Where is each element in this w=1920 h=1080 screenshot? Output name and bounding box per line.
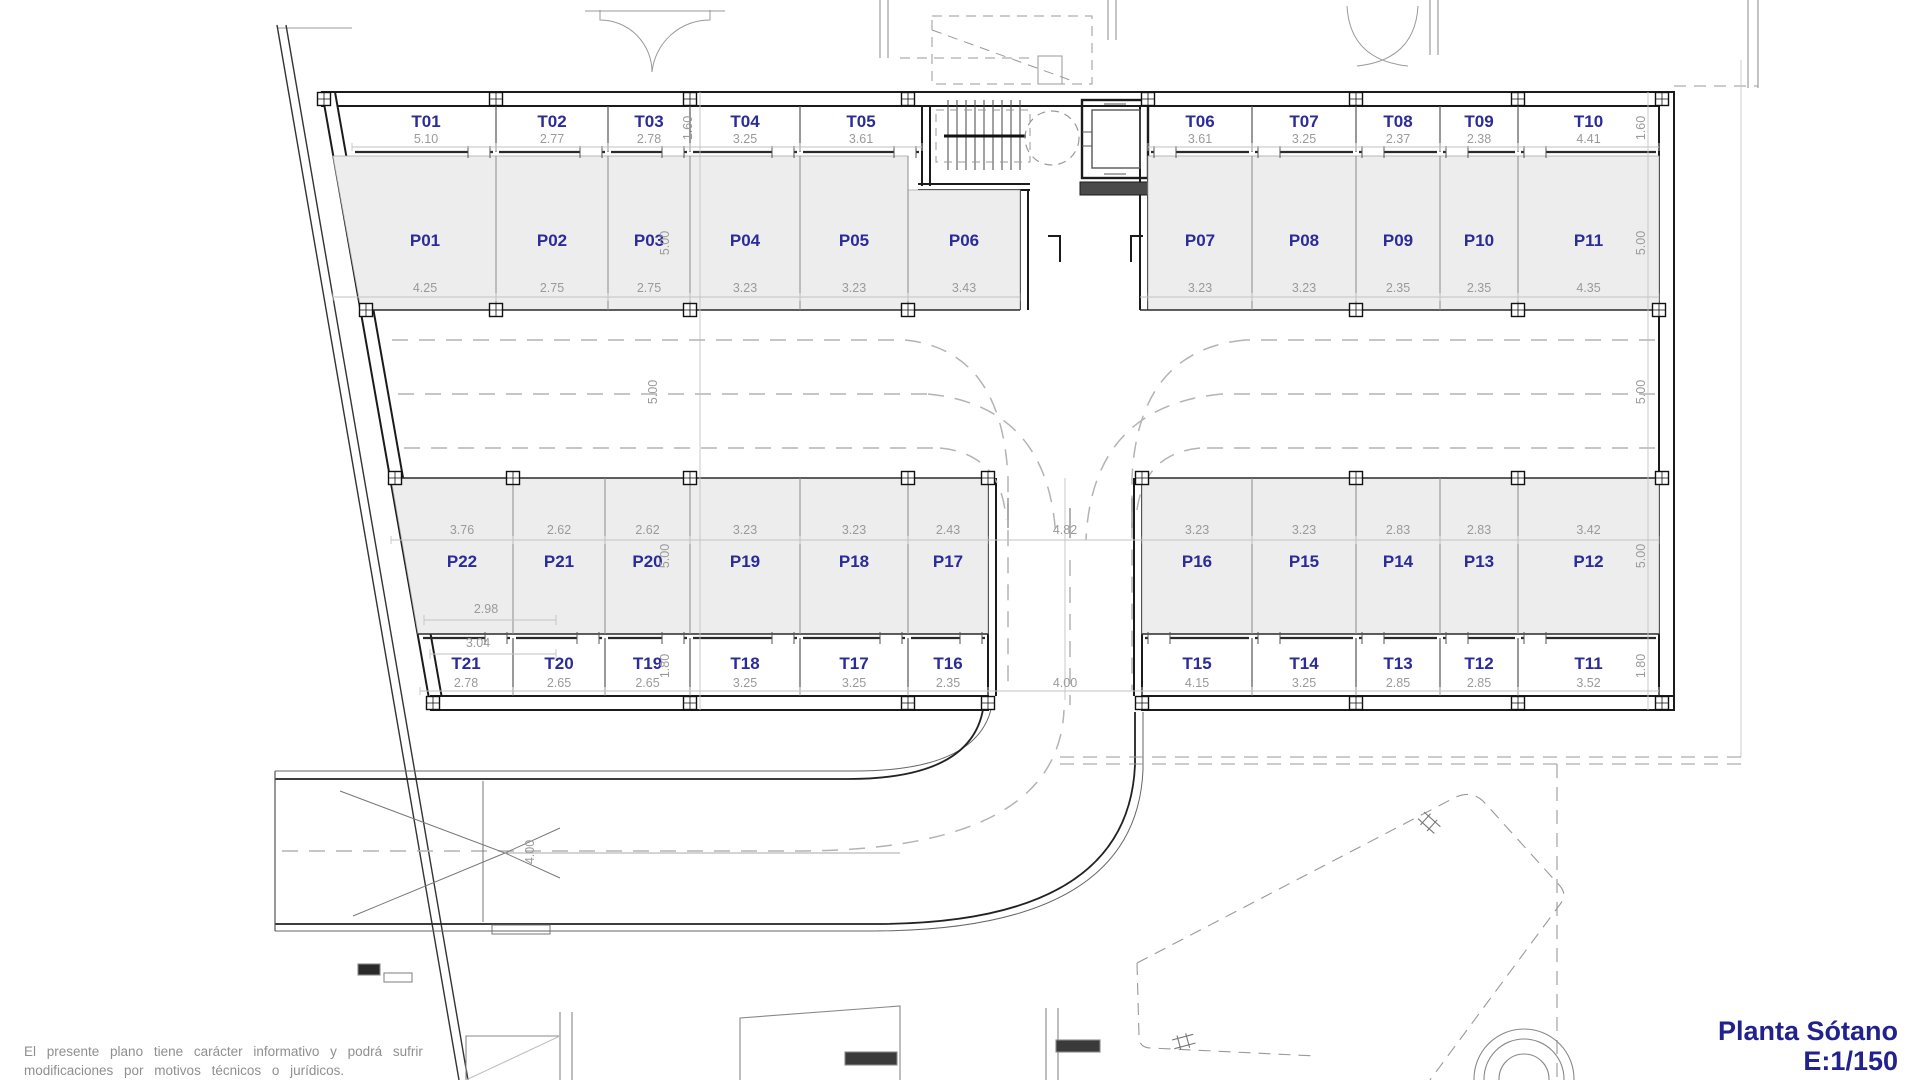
turning-circle — [1025, 111, 1079, 165]
parking-space-dim: 2.75 — [540, 281, 564, 295]
elevator-sill — [1080, 182, 1148, 195]
parking-space-label: P15 — [1289, 552, 1319, 571]
storage-room-dim: 2.37 — [1386, 132, 1410, 146]
plan-title: Planta Sótano — [1718, 1016, 1898, 1046]
floor-plan-canvas: T015.10T022.77T032.78T043.25T053.61T063.… — [0, 0, 1920, 1080]
parking-space-dim: 3.23 — [733, 523, 757, 537]
storage-room-dim: 2.78 — [637, 132, 661, 146]
storage-room-label: T13 — [1383, 654, 1412, 673]
title-block: Planta Sótano E:1/150 — [1718, 1016, 1898, 1076]
storage-room-dim: 3.61 — [849, 132, 873, 146]
column-marker — [684, 304, 697, 317]
elevator-door — [1082, 104, 1126, 174]
door-arcs-icon — [1347, 6, 1418, 66]
storage-room-label: T04 — [730, 112, 760, 131]
storage-room-dim: 3.25 — [1292, 132, 1316, 146]
depth-dim: 5.00 — [658, 231, 672, 255]
column-marker — [902, 93, 915, 106]
column-marker — [490, 304, 503, 317]
parking-space-label: P14 — [1383, 552, 1414, 571]
parking-space-label: P19 — [730, 552, 760, 571]
storage-room-dim: 2.65 — [635, 676, 659, 690]
wall-bottom-right — [1142, 696, 1674, 710]
column-marker — [1142, 93, 1155, 106]
column-marker — [1350, 93, 1363, 106]
storage-room-label: T16 — [933, 654, 962, 673]
storage-room-dim: 2.38 — [1467, 132, 1491, 146]
parking-space-dim: 2.83 — [1467, 523, 1491, 537]
column-marker — [360, 304, 373, 317]
depth-dim: 1.80 — [658, 654, 672, 678]
parking-space-label: P22 — [447, 552, 477, 571]
parking-space-dim: 3.23 — [842, 281, 866, 295]
context-structures-bottom-left — [358, 964, 1100, 1080]
storage-room-dim: 3.25 — [842, 676, 866, 690]
column-marker — [427, 697, 440, 710]
pool-outline — [1137, 794, 1564, 1080]
storage-room-dim: 2.85 — [1467, 676, 1491, 690]
storage-room-dim: 3.52 — [1576, 676, 1600, 690]
column-marker — [1512, 472, 1525, 485]
parking-space-dim: 3.23 — [1292, 281, 1316, 295]
bottom-gap-dim: 4.00 — [1053, 676, 1077, 690]
upper-floor-outline — [900, 16, 1092, 84]
parking-space-label: P16 — [1182, 552, 1212, 571]
column-marker — [1656, 697, 1669, 710]
depth-dim: 1.80 — [1634, 654, 1648, 678]
column-marker — [1512, 304, 1525, 317]
parking-space-label: P12 — [1573, 552, 1603, 571]
parking-space-label: P18 — [839, 552, 869, 571]
upper-floor-pier — [1038, 56, 1062, 84]
column-marker — [1656, 472, 1669, 485]
column-marker — [684, 697, 697, 710]
storage-room-dim: 2.77 — [540, 132, 564, 146]
parking-space-dim: 2.35 — [1386, 281, 1410, 295]
storage-room-dim: 2.65 — [547, 676, 571, 690]
depth-dim: 5.00 — [1634, 380, 1648, 404]
road-side-stub — [492, 925, 550, 934]
column-marker — [902, 472, 915, 485]
plan-disclaimer: El presente plano tiene carácter informa… — [24, 1042, 423, 1080]
storage-room-label: T21 — [451, 654, 480, 673]
storage-room-label: T03 — [634, 112, 663, 131]
storage-room-dim: 5.10 — [414, 132, 438, 146]
column-marker — [684, 93, 697, 106]
wall-right — [1659, 92, 1674, 710]
column-marker — [982, 472, 995, 485]
column-marker — [318, 93, 331, 106]
depth-dim: 5.00 — [1634, 231, 1648, 255]
column-marker — [1350, 472, 1363, 485]
parking-space-dim: 2.75 — [637, 281, 661, 295]
parking-space-dim: 2.43 — [936, 523, 960, 537]
column-marker — [1656, 93, 1669, 106]
storage-room-label: T09 — [1464, 112, 1493, 131]
column-marker — [389, 472, 402, 485]
parking-space-dim: 3.23 — [1188, 281, 1212, 295]
storage-room-label: T12 — [1464, 654, 1493, 673]
parking-space-dim: 3.23 — [733, 281, 757, 295]
parking-space-dim: 4.25 — [413, 281, 437, 295]
left-extra-dim: 3.04 — [466, 636, 490, 650]
context-above-building — [277, 0, 1758, 757]
left-extra-dim: 2.98 — [474, 602, 498, 616]
ramp-opening-dim: 4.82 — [1053, 523, 1077, 537]
column-marker — [982, 697, 995, 710]
storage-room-label: T06 — [1185, 112, 1214, 131]
parking-space-label: P02 — [537, 231, 567, 250]
parking-space-label: P09 — [1383, 231, 1413, 250]
storage-room-label: T17 — [839, 654, 868, 673]
storage-room-label: T02 — [537, 112, 566, 131]
storage-room-label: T15 — [1182, 654, 1211, 673]
road-edge-top — [275, 702, 984, 779]
column-marker — [1136, 472, 1149, 485]
wall-stubs-above — [880, 0, 1758, 88]
parking-space-dim: 3.43 — [952, 281, 976, 295]
storage-room-label: T05 — [846, 112, 875, 131]
parking-space-dim: 2.62 — [547, 523, 571, 537]
storage-room-dim: 2.85 — [1386, 676, 1410, 690]
depth-dim: 1.60 — [681, 116, 695, 140]
parking-space-dim: 2.83 — [1386, 523, 1410, 537]
column-marker — [1653, 304, 1666, 317]
storage-room-dim: 3.25 — [733, 676, 757, 690]
parking-space-dim: 3.23 — [1185, 523, 1209, 537]
disclaimer-line1: El presente plano tiene carácter informa… — [24, 1042, 423, 1061]
road-edge-bottom — [275, 712, 1135, 924]
parking-space-dim: 2.62 — [635, 523, 659, 537]
column-marker — [1350, 304, 1363, 317]
storage-room-dim: 3.25 — [733, 132, 757, 146]
disclaimer-line2: modificaciones por motivos técnicos o ju… — [24, 1061, 423, 1080]
parking-space-dim: 2.35 — [1467, 281, 1491, 295]
storage-room-label: T01 — [411, 112, 440, 131]
storage-room-label: T08 — [1383, 112, 1412, 131]
column-marker — [490, 93, 503, 106]
parking-space-label: P01 — [410, 231, 440, 250]
parking-space-label: P08 — [1289, 231, 1319, 250]
parking-space-dim: 3.42 — [1576, 523, 1600, 537]
plan-scale: E:1/150 — [1718, 1046, 1898, 1076]
depth-dim: 5.00 — [658, 544, 672, 568]
column-marker — [507, 472, 520, 485]
storage-room-dim: 4.41 — [1576, 132, 1600, 146]
parking-space-label: P17 — [933, 552, 963, 571]
parking-space-dim: 4.35 — [1576, 281, 1600, 295]
storage-room-dim: 4.15 — [1185, 676, 1209, 690]
elevator — [1080, 100, 1148, 195]
double-door-icon — [585, 10, 725, 72]
column-marker — [1136, 697, 1149, 710]
context-dashed-plot-lines — [1060, 757, 1745, 1080]
storage-room-label: T07 — [1289, 112, 1318, 131]
access-road — [275, 698, 1143, 934]
parking-space-label: P13 — [1464, 552, 1494, 571]
storage-room-label: T18 — [730, 654, 759, 673]
parking-space-label: P21 — [544, 552, 574, 571]
column-marker — [1512, 697, 1525, 710]
storage-room-label: T14 — [1289, 654, 1319, 673]
parking-space-label: P11 — [1574, 231, 1603, 250]
floor-plan-drawing: T015.10T022.77T032.78T043.25T053.61T063.… — [0, 0, 1920, 1080]
storage-room-dim: 2.78 — [454, 676, 478, 690]
depth-dim: 5.00 — [1634, 544, 1648, 568]
storage-room-label: T10 — [1574, 112, 1603, 131]
depth-dim: 1.60 — [1634, 116, 1648, 140]
storage-room-dim: 2.35 — [936, 676, 960, 690]
wall-top — [322, 92, 1674, 106]
storage-room-dim: 3.61 — [1188, 132, 1212, 146]
elevator-car — [1092, 110, 1140, 168]
storage-room-dim: 3.25 — [1292, 676, 1316, 690]
ramp-guard-stubs — [1048, 236, 1143, 262]
parking-space-label: P06 — [949, 231, 979, 250]
column-marker — [684, 472, 697, 485]
pool-ladder-icon — [1416, 810, 1442, 836]
column-marker — [902, 304, 915, 317]
parking-space-label: P10 — [1464, 231, 1494, 250]
parking-space-dim: 3.23 — [842, 523, 866, 537]
context-site-bottom — [358, 757, 1745, 1080]
parking-space-label: P04 — [730, 231, 761, 250]
column-marker — [1350, 697, 1363, 710]
parking-space-dim: 3.23 — [1292, 523, 1316, 537]
storage-room-label: T11 — [1574, 654, 1602, 673]
road-edge-bottom-outer — [275, 712, 1143, 931]
rooms-and-dimensions-layer: T015.10T022.77T032.78T043.25T053.61T063.… — [318, 92, 1669, 864]
parking-space-label: P05 — [839, 231, 869, 250]
pool-ladder-icon — [1171, 1031, 1196, 1051]
column-marker — [1512, 93, 1525, 106]
spa-circles — [1474, 1029, 1574, 1080]
storage-room-label: T20 — [544, 654, 573, 673]
depth-dim: 5.00 — [646, 380, 660, 404]
parking-space-label: P07 — [1185, 231, 1215, 250]
column-marker — [902, 697, 915, 710]
parking-space-dim: 3.76 — [450, 523, 474, 537]
road-width-dim: 4.00 — [523, 840, 537, 864]
